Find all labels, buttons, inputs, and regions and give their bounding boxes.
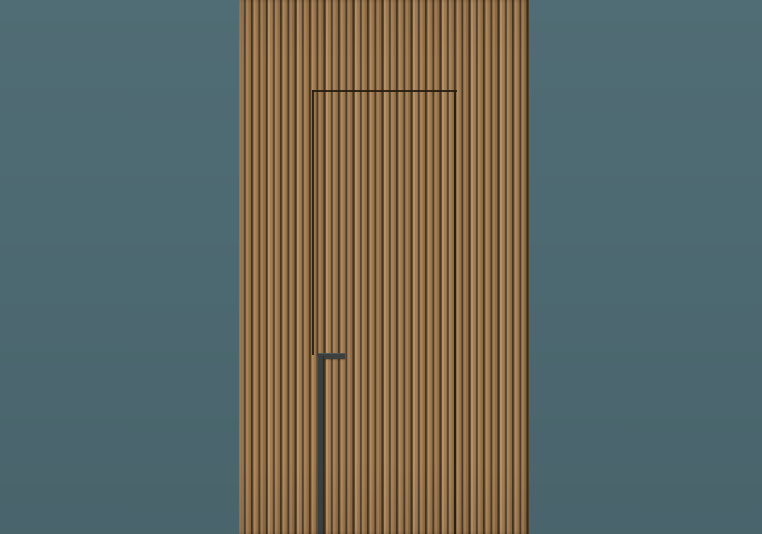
- door-seam-left: [312, 90, 314, 355]
- door-seam-top: [312, 90, 457, 92]
- door-seam-right: [454, 90, 456, 534]
- door-pull-handle-channel: [317, 356, 324, 534]
- product-photo-stage: Concealed flush interior door integrated…: [0, 0, 762, 534]
- wood-slat-panel: [239, 0, 529, 534]
- wood-grain-overlay: [239, 0, 529, 534]
